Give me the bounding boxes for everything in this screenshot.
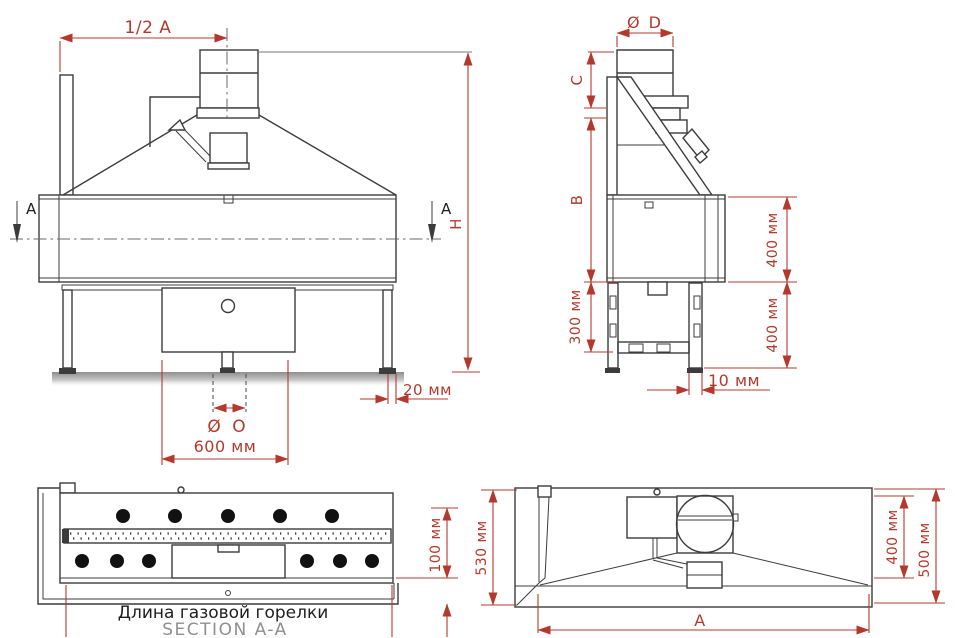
- dim-half-a-label: 1/2 A: [125, 18, 172, 38]
- front-control-box: [210, 133, 247, 163]
- dim-20mm-label: 20 мм: [403, 381, 452, 399]
- dim-b-label: B: [568, 195, 586, 206]
- top-box: [627, 497, 677, 538]
- dim-530mm-label: 530 мм: [474, 520, 490, 575]
- dim-400mm-top-label: 400 мм: [885, 509, 901, 564]
- front-burner-box: [162, 288, 295, 352]
- dim-500mm-label: 500 мм: [917, 522, 933, 577]
- technical-drawing-page: 1/2 A H A A 20 мм Ø O 600 мм: [0, 0, 955, 638]
- dim-a-label: A: [694, 611, 705, 630]
- dim-h-label: H: [447, 218, 465, 230]
- section-marker-left-label: A: [26, 200, 37, 218]
- technical-drawing: 1/2 A H A A 20 мм Ø O 600 мм: [0, 0, 955, 638]
- dim-600mm-label: 600 мм: [194, 437, 257, 456]
- dim-c-label: C: [568, 75, 586, 86]
- dim-300mm-label: 300 мм: [568, 289, 584, 344]
- front-back-post: [60, 75, 73, 195]
- dim-10mm-label: 10 мм: [708, 371, 760, 390]
- side-body: [607, 195, 725, 282]
- side-back-panel: [607, 77, 617, 195]
- dim-pipe-diameter-label: Ø O: [207, 417, 248, 437]
- front-view: 1/2 A H A A 20 мм Ø O 600 мм: [10, 18, 480, 465]
- side-view: Ø D C B 300 мм 400 мм 400 мм 10 мм: [568, 13, 797, 395]
- section-aa-view: 100 мм Длина газовой горелки SECTION A-A: [38, 483, 458, 638]
- front-chimney: [200, 50, 258, 108]
- dim-400mm-lower-label: 400 мм: [765, 297, 781, 352]
- top-view: 530 мм 400 мм 500 мм A + 100: [474, 486, 945, 638]
- dim-flue-diameter-label: Ø D: [627, 13, 663, 32]
- section-burner-strip: [64, 529, 391, 543]
- dim-100mm-label: 100 мм: [428, 517, 444, 572]
- caption-section-aa: SECTION A-A: [162, 620, 287, 638]
- dim-400mm-upper-label: 400 мм: [765, 212, 781, 267]
- section-marker-right-label: A: [441, 200, 452, 218]
- ground-shadow: [52, 372, 404, 387]
